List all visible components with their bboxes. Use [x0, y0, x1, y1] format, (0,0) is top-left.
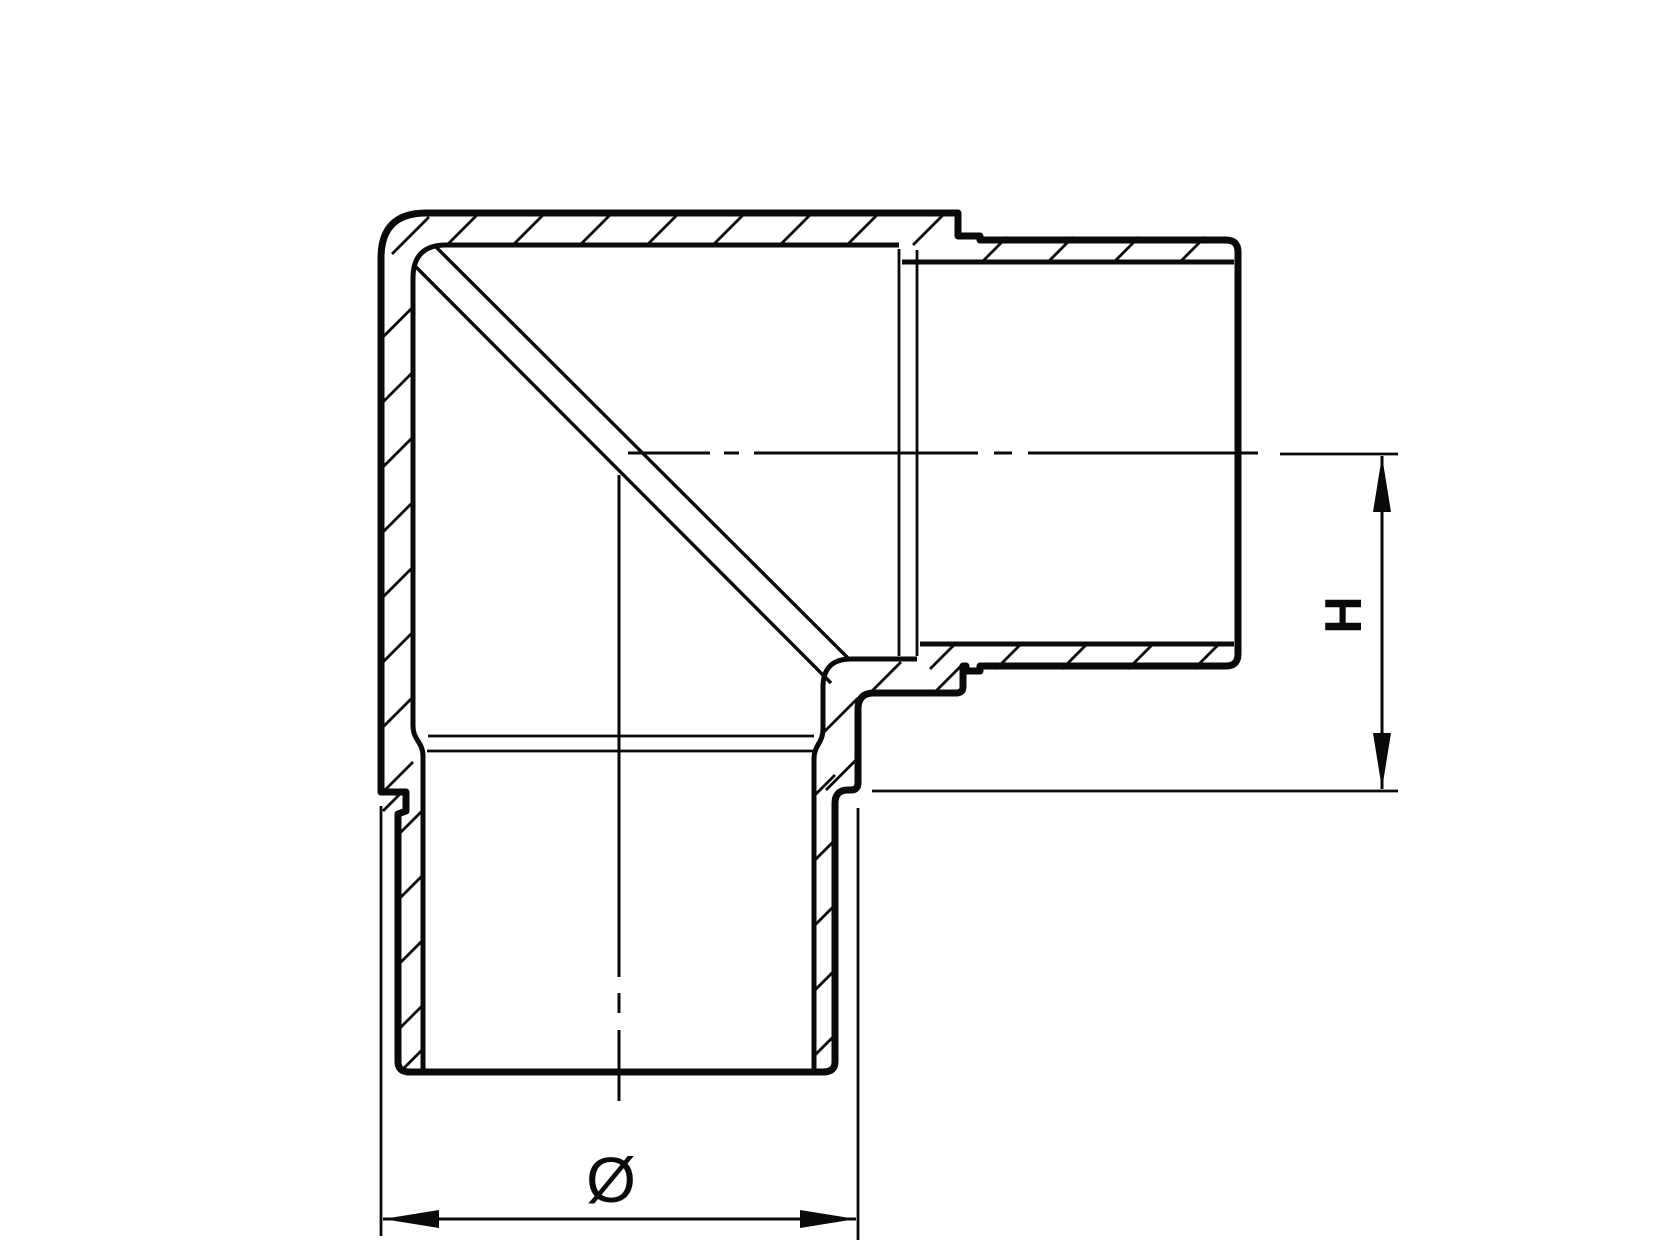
dia-dimension-label: Ø	[586, 1144, 636, 1216]
paper-background	[0, 0, 1680, 1260]
h-dimension-label: H	[1315, 596, 1373, 634]
technical-drawing-page: H Ø	[0, 0, 1680, 1260]
elbow-fitting-drawing: H Ø	[0, 0, 1680, 1260]
